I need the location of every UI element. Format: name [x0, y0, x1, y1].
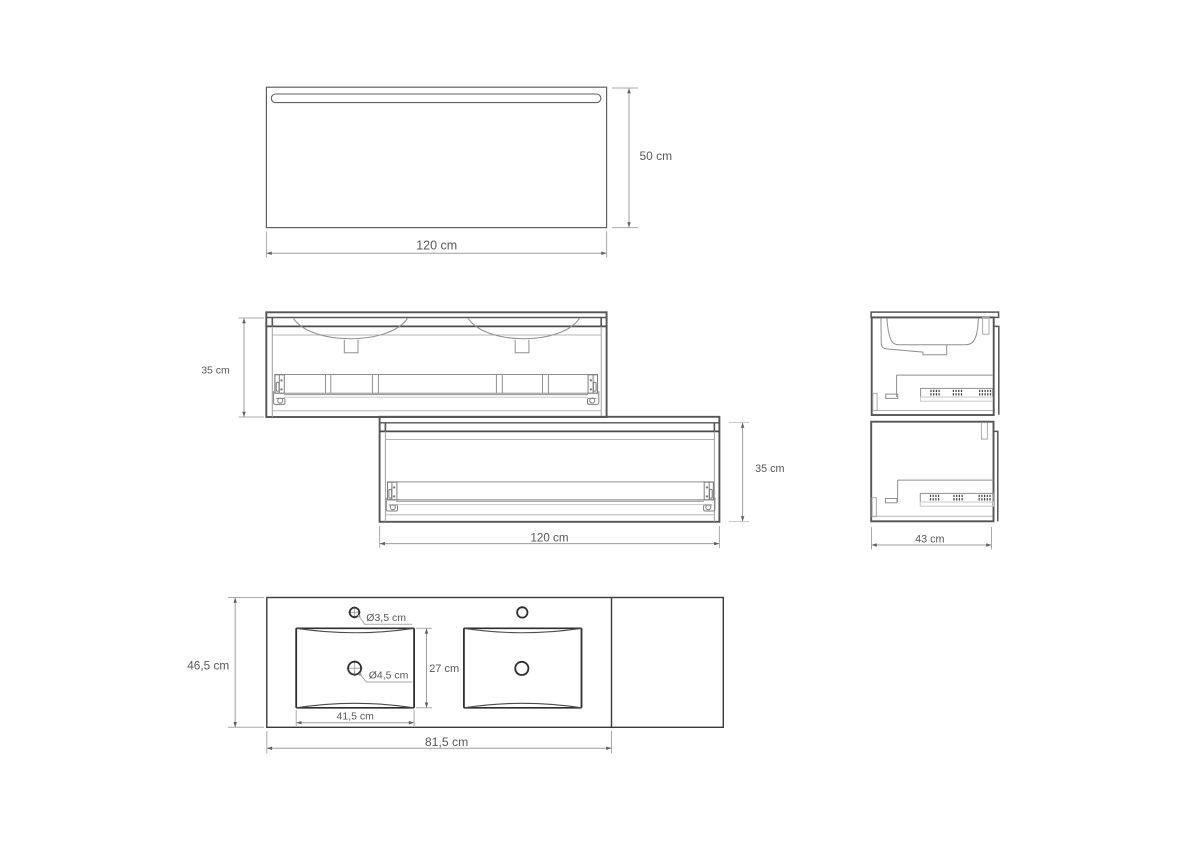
svg-text:35 cm: 35 cm: [201, 364, 230, 376]
svg-text:81,5 cm: 81,5 cm: [425, 735, 468, 749]
svg-text:50 cm: 50 cm: [640, 149, 673, 163]
svg-text:43 cm: 43 cm: [915, 533, 944, 545]
svg-text:120 cm: 120 cm: [530, 531, 568, 544]
svg-text:120 cm: 120 cm: [416, 239, 457, 253]
svg-text:27 cm: 27 cm: [429, 663, 459, 675]
svg-text:41,5 cm: 41,5 cm: [337, 711, 375, 723]
svg-text:35 cm: 35 cm: [755, 463, 784, 475]
svg-text:46,5 cm: 46,5 cm: [187, 658, 229, 672]
svg-text:Ø4,5 cm: Ø4,5 cm: [369, 669, 409, 681]
svg-text:Ø3,5 cm: Ø3,5 cm: [366, 612, 406, 624]
